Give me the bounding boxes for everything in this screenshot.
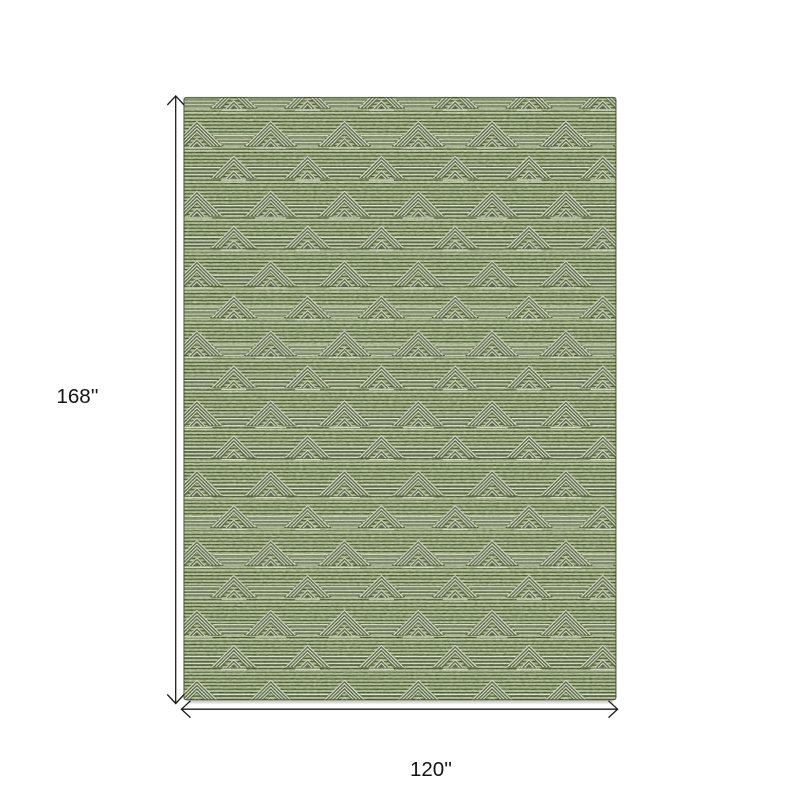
svg-text:168'': 168''	[56, 385, 98, 408]
svg-text:120'': 120''	[410, 758, 452, 781]
